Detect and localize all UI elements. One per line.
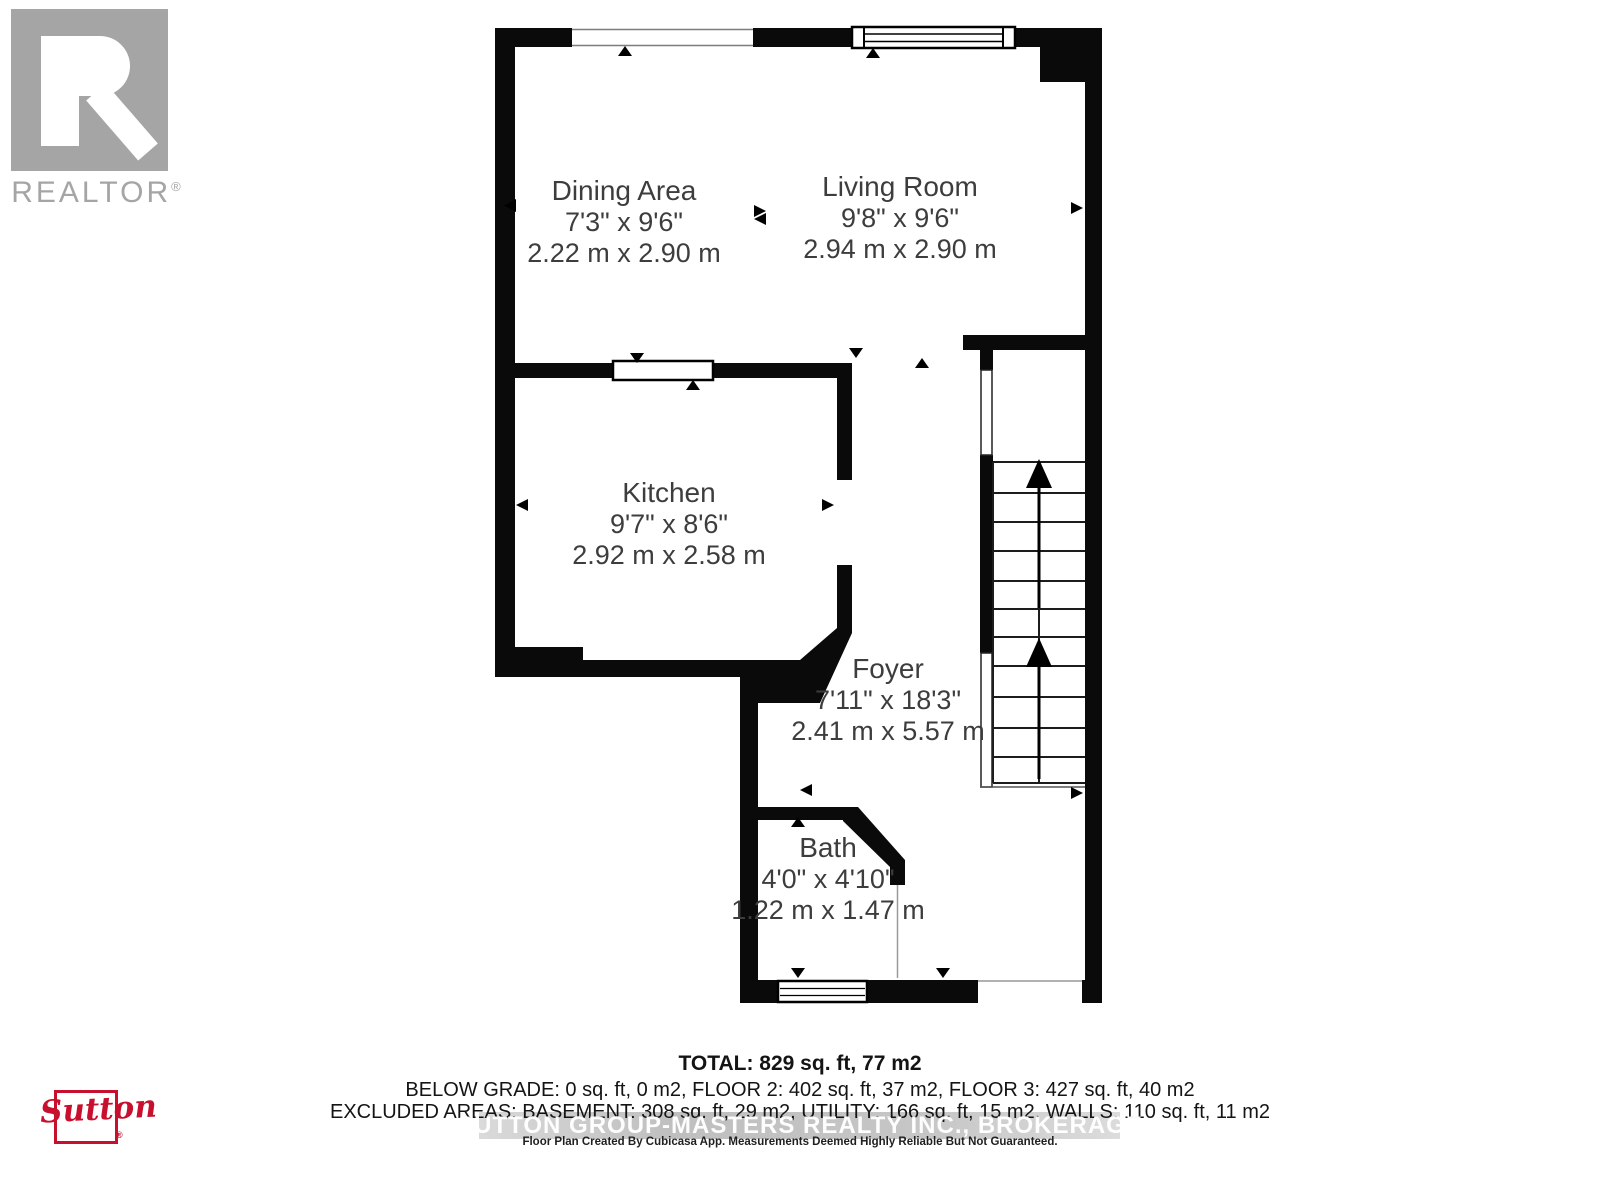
room-dim-imperial-living: 9'8" x 9'6": [803, 203, 997, 234]
room-name-living: Living Room: [803, 170, 997, 203]
room-dim-metric-living: 2.94 m x 2.90 m: [803, 234, 997, 265]
sutton-logo: Sutton ®: [40, 1082, 150, 1148]
room-dim-imperial-kitchen: 9'7" x 8'6": [572, 509, 766, 540]
room-dim-metric-foyer: 2.41 m x 5.57 m: [791, 716, 985, 747]
staircase: [980, 370, 1085, 787]
room-label-living: Living Room 9'8" x 9'6" 2.94 m x 2.90 m: [803, 170, 997, 265]
room-name-bath: Bath: [731, 831, 925, 864]
room-name-dining: Dining Area: [527, 174, 721, 207]
cubicasa-disclaimer: Floor Plan Created By Cubicasa App. Meas…: [522, 1136, 1057, 1148]
total-area-line: TOTAL: 829 sq. ft, 77 m2: [678, 1052, 921, 1076]
room-dim-imperial-foyer: 7'11" x 18'3": [791, 685, 985, 716]
room-name-kitchen: Kitchen: [572, 476, 766, 509]
floor-plan-page: REALTOR® Sutton ® Dining Area 7'3" x 9'6…: [0, 0, 1600, 1200]
room-dim-metric-dining: 2.22 m x 2.90 m: [527, 238, 721, 269]
room-dim-metric-bath: 1.22 m x 1.47 m: [731, 895, 925, 926]
brokerage-watermark-text: SUTTON GROUP-MASTERS REALTY INC., BROKER…: [457, 1112, 1143, 1139]
realtor-wordmark-text: REALTOR: [11, 176, 171, 209]
room-name-foyer: Foyer: [791, 652, 985, 685]
floor-plan-drawing: [0, 0, 1600, 1200]
sutton-registered-mark: ®: [116, 1130, 123, 1140]
stair-railing-upper: [981, 370, 992, 455]
realtor-registered-mark: ®: [171, 179, 181, 194]
room-label-bath: Bath 4'0" x 4'10" 1.22 m x 1.47 m: [731, 831, 925, 926]
below-grade-line: BELOW GRADE: 0 sq. ft, 0 m2, FLOOR 2: 40…: [405, 1079, 1194, 1102]
room-label-foyer: Foyer 7'11" x 18'3" 2.41 m x 5.57 m: [791, 652, 985, 747]
room-label-kitchen: Kitchen 9'7" x 8'6" 2.92 m x 2.58 m: [572, 476, 766, 571]
sutton-wordmark: Sutton: [39, 1089, 141, 1130]
realtor-wordmark: REALTOR®: [8, 176, 184, 210]
room-label-dining: Dining Area 7'3" x 9'6" 2.22 m x 2.90 m: [527, 174, 721, 269]
room-dim-imperial-dining: 7'3" x 9'6": [527, 207, 721, 238]
room-dim-metric-kitchen: 2.92 m x 2.58 m: [572, 540, 766, 571]
room-dim-imperial-bath: 4'0" x 4'10": [731, 864, 925, 895]
realtor-logo: [11, 9, 168, 171]
